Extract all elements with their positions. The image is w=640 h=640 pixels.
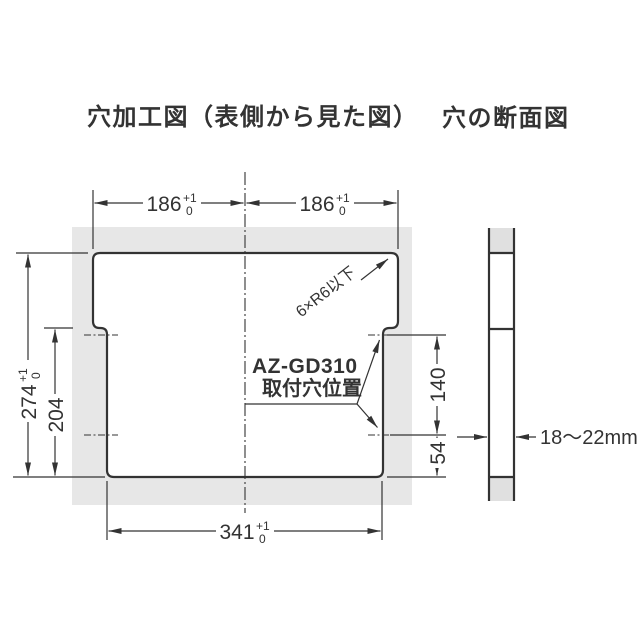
svg-text:+1: +1: [256, 519, 270, 533]
hole-position-label: 取付穴位置: [262, 376, 362, 400]
technical-drawing-page: { "titles": { "hole_machining": "穴加工図（表側…: [0, 0, 640, 640]
svg-text:+1: +1: [16, 368, 30, 382]
section-view: [488, 228, 515, 501]
svg-text:274: 274: [18, 384, 41, 419]
svg-text:0: 0: [186, 204, 193, 218]
svg-text:0: 0: [339, 204, 346, 218]
svg-text:341: 341: [219, 521, 254, 544]
svg-text:140: 140: [427, 367, 450, 402]
svg-text:186: 186: [299, 193, 334, 216]
product-code-label: AZ-GD310: [252, 355, 358, 378]
svg-text:18〜22mm: 18〜22mm: [540, 427, 638, 449]
dim-thickness: 18〜22mm: [457, 427, 638, 449]
drawing-canvas: 穴加工図（表側から見た図） 穴の断面図 186 +1 0 186 +1 0 27…: [0, 0, 640, 640]
svg-text:0: 0: [29, 372, 43, 379]
svg-text:186: 186: [146, 193, 181, 216]
svg-text:0: 0: [259, 532, 266, 546]
svg-text:54: 54: [427, 441, 450, 465]
title-hole-machining: 穴加工図（表側から見た図）: [87, 103, 419, 131]
title-hole-section: 穴の断面図: [442, 104, 570, 132]
section-material-bottom: [490, 478, 513, 501]
svg-text:+1: +1: [336, 191, 350, 205]
svg-text:+1: +1: [183, 191, 197, 205]
svg-text:204: 204: [45, 397, 68, 432]
dim-lower-height-204: 204: [44, 328, 73, 476]
section-material-top: [490, 228, 513, 252]
